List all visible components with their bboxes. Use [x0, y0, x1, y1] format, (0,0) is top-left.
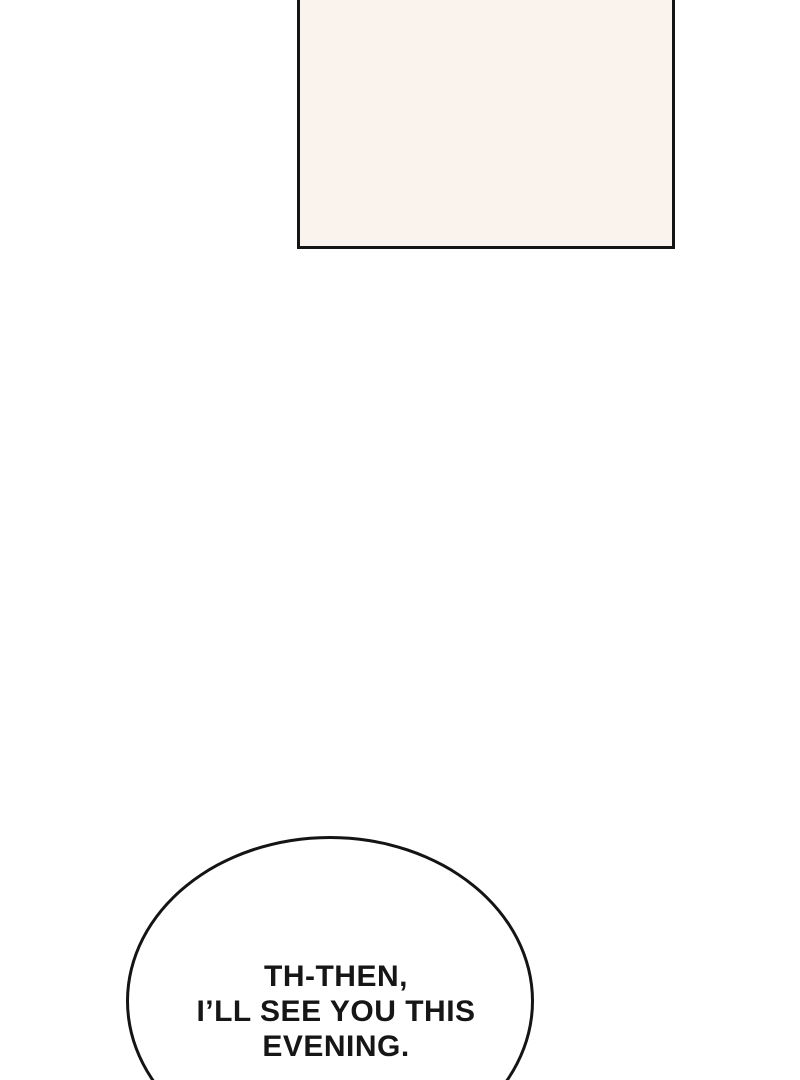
speech-bubble-text: TH-THEN, I’LL SEE YOU THIS EVENING.	[138, 959, 534, 1064]
speech-line-2: I’LL SEE YOU THIS	[138, 994, 534, 1029]
comic-panel	[297, 0, 675, 249]
pink-blush-artwork	[297, 52, 364, 249]
comic-page: TH-THEN, I’LL SEE YOU THIS EVENING.	[0, 0, 800, 1080]
speech-line-3: EVENING.	[138, 1029, 534, 1064]
speech-line-1: TH-THEN,	[138, 959, 534, 994]
speech-bubble: TH-THEN, I’LL SEE YOU THIS EVENING.	[126, 836, 534, 1080]
